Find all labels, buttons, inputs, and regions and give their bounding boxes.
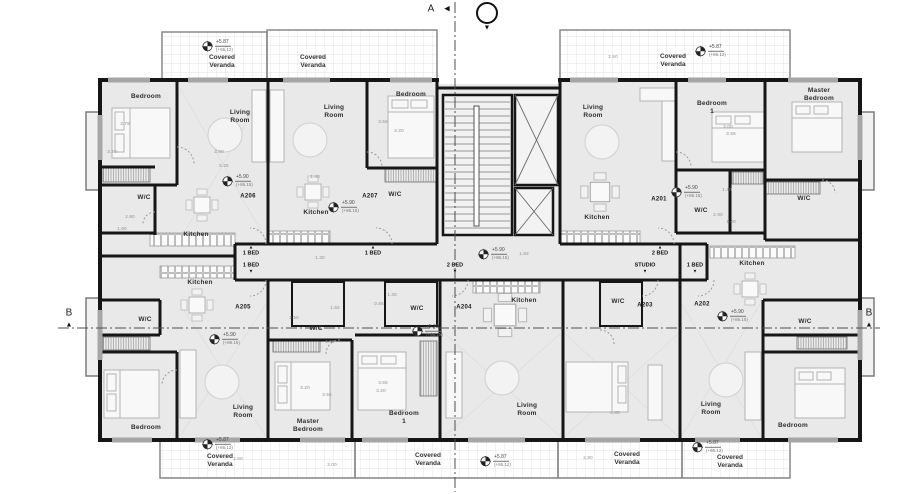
room-label: Living Room [583,104,603,120]
room-label: Living Room [230,109,250,125]
dimension-label: 1.40 [722,187,732,193]
veranda-label: Covered Veranda [209,54,235,70]
room-label: Kitchen [187,279,212,287]
elevation-value: +5.90 [341,201,357,208]
elevation-marker: +5.87 (+86.12) [692,441,723,453]
room-label: Master Bedroom [804,87,834,103]
room-label: W/C [138,316,151,324]
dimension-label: 1.40 [310,174,320,180]
door-direction-icon: ▲ [658,245,662,250]
dimension-label: 3.20 [376,388,386,394]
room-label: Living Room [233,404,253,420]
elevation-value: +5.90 [222,333,238,340]
corridor-label-text: 1 BED [365,250,381,257]
room-label: Bedroom [778,422,808,430]
dimension-label: 0.85 [374,301,384,307]
door-direction-icon: ▼ [643,269,647,274]
unit-number-label: A206 [240,193,256,201]
floor-plan-canvas: BedroomLiving RoomW/CKitchenLiving RoomB… [0,0,900,494]
level-marker-icon [209,333,220,344]
room-label: W/C [388,191,401,199]
unit-number-label: A201 [651,196,667,204]
dimension-label: 2.90 [125,214,135,220]
elevation-value: +5.87 [215,40,231,47]
level-marker-icon [478,248,489,259]
elevation-value: +5.87 [708,45,724,52]
level-marker-icon [717,310,728,321]
room-label: Kitchen [303,209,328,217]
door-direction-icon: ▼ [693,269,697,274]
room-label: Bedroom 1 [697,100,727,116]
dimension-label: 1.40 [726,219,736,225]
dimension-label: 3.60 [214,149,224,155]
corridor-unit-type-label: 1 BED▼ [243,262,259,273]
room-label: Kitchen [584,214,609,222]
section-letter: B [866,308,873,319]
room-label: Bedroom 1 [389,410,419,426]
elevation-value: +5.90 [730,310,746,317]
level-marker-icon [222,175,233,186]
corridor-unit-type-label: ▲1 BED [365,245,381,256]
dimension-label: 2.50 [608,54,618,60]
corridor-unit-type-label: 2 BED▼ [447,262,463,273]
elevation-value: +5.90 [684,186,700,193]
level-marker-icon [671,186,682,197]
room-label: Kitchen [739,260,764,268]
elevation-marker: +5.87 (+86.12) [480,455,511,467]
room-label: W/C [694,207,707,215]
elevation-datum: (+86.12) [215,445,233,450]
dimension-label: 4.85 [610,410,620,416]
dimension-label: 1.40 [387,292,397,298]
section-arrow-icon: ▼ [484,25,491,32]
dimension-label: 3.55 [378,119,388,125]
elevation-value: +5.90 [235,175,251,182]
level-marker-icon [480,455,491,466]
unit-number-label: A205 [235,304,251,312]
dimension-label: 3.55 [378,380,388,386]
corridor-label-text: STUDIO [635,262,656,269]
room-label: Bedroom [131,424,161,432]
elevation-value: +5.90 [491,248,507,255]
level-marker-icon [695,45,706,56]
room-label: Kitchen [511,297,536,305]
veranda-label: Covered Veranda [207,453,233,469]
corridor-unit-type-label: 1 BED▼ [687,262,703,273]
corridor-unit-type-label: STUDIO▼ [635,262,656,273]
elevation-datum: (+86.12) [705,448,723,453]
dimension-label: 3.55 [322,392,332,398]
elevation-marker: +5.90 (+86.15) [717,310,748,322]
room-label: Master Bedroom [293,418,323,434]
dimension-label: 1.60 [117,226,127,232]
corridor-unit-type-label: ▲1 BED [243,245,259,256]
room-label: W/C [798,318,811,326]
elevation-value: +5.87 [493,455,509,462]
veranda-label: Covered Veranda [614,451,640,467]
elevation-marker: +5.87 (+86.12) [202,40,233,52]
unit-number-label: A207 [362,193,378,201]
corridor-label-text: 2 BED [652,250,668,257]
elevation-datum: (+86.15) [235,182,253,187]
room-label: Kitchen [183,231,208,239]
elevation-datum: (+86.15) [341,208,359,213]
level-marker-icon [692,441,703,452]
elevation-marker: +5.90 (+86.15) [478,248,509,260]
dimension-label: 3.20 [300,385,310,391]
elevation-datum: (+86.12) [493,462,511,467]
level-marker-icon [202,438,213,449]
dimension-label: 2.80 [583,455,593,461]
section-letter: B [66,308,73,319]
elevation-datum: (+86.15) [425,332,443,337]
room-label: W/C [797,195,810,203]
dimension-label: 2.50 [289,315,299,321]
section-letter: A [428,4,435,15]
corridor-label-text: 2 BED [447,262,463,269]
elevation-datum: (+86.15) [222,340,240,345]
level-marker-icon [412,325,423,336]
labels-layer: BedroomLiving RoomW/CKitchenLiving RoomB… [0,0,900,494]
room-label: W/C [611,298,624,306]
elevation-marker: +5.90 (+86.15) [671,186,702,198]
level-marker-icon [328,201,339,212]
section-arrow-icon: ◀ [444,6,449,13]
dimension-label: 3.20 [107,149,117,155]
elevation-datum: (+86.12) [215,47,233,52]
room-label: Living Room [517,402,537,418]
section-arrow-icon: ▲ [866,322,873,329]
elevation-value: +5.90 [425,325,441,332]
door-direction-icon: ▼ [453,269,457,274]
dimension-label: 2.60 [233,456,243,462]
room-label: Living Room [324,104,344,120]
elevation-marker: +5.90 (+86.15) [412,325,443,337]
dimension-label: 3.55 [726,131,736,137]
elevation-marker: +5.87 (+86.12) [695,45,726,57]
dimension-label: 1.50 [325,339,335,345]
elevation-marker: +5.90 (+86.15) [328,201,359,213]
section-bubble-marker [476,2,498,24]
door-direction-icon: ▲ [249,245,253,250]
dimension-label: 3.79 [120,121,130,127]
elevation-marker: +5.90 (+86.15) [222,175,253,187]
corridor-label-text: 1 BED [243,262,259,269]
unit-number-label: A203 [637,302,653,310]
door-direction-icon: ▼ [249,269,253,274]
elevation-marker: +5.90 (+86.15) [209,333,240,345]
door-direction-icon: ▲ [371,245,375,250]
room-label: Bedroom [396,91,426,99]
elevation-value: +5.87 [705,441,721,448]
room-label: Living Room [701,401,721,417]
dimension-label: 3.00 [327,462,337,468]
corridor-label-text: 1 BED [687,262,703,269]
elevation-marker: +5.87 (+86.12) [202,438,233,450]
room-label: Bedroom [131,93,161,101]
room-label: W/C [410,305,423,313]
dimension-label: 1.65 [330,305,340,311]
dimension-label: 3.20 [394,128,404,134]
elevation-value: +5.87 [215,438,231,445]
elevation-datum: (+86.12) [708,52,726,57]
elevation-datum: (+86.15) [730,317,748,322]
level-marker-icon [202,40,213,51]
veranda-label: Covered Veranda [415,452,441,468]
corridor-label-text: 1 BED [243,250,259,257]
veranda-label: Covered Veranda [300,54,326,70]
elevation-datum: (+86.15) [491,255,509,260]
section-arrow-icon: ▲ [66,322,73,329]
veranda-label: Covered Veranda [660,53,686,69]
dimension-label: 1.82 [519,251,529,257]
dimension-label: 2.60 [314,54,324,60]
dimension-label: 3.00 [723,124,733,130]
dimension-label: 1.30 [315,255,325,261]
dimension-label: 2.90 [713,212,723,218]
veranda-label: Covered Veranda [717,454,743,470]
unit-number-label: A204 [456,304,472,312]
dimension-label: 5.25 [219,163,229,169]
room-label: W/C [309,325,322,333]
elevation-datum: (+86.15) [684,193,702,198]
unit-number-label: A202 [694,301,710,309]
corridor-unit-type-label: ▲2 BED [652,245,668,256]
room-label: W/C [137,194,150,202]
